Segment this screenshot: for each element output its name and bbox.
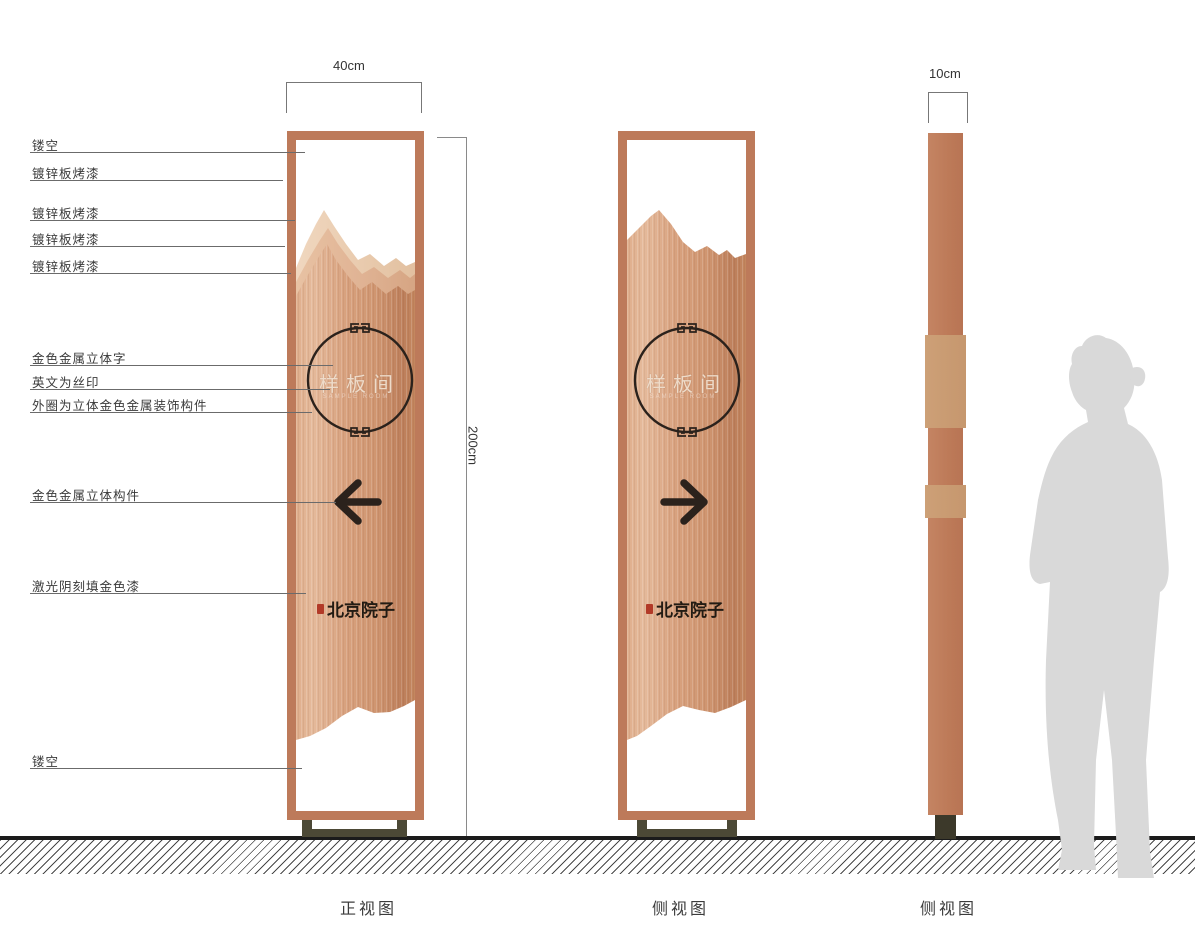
leader-line: [30, 180, 283, 181]
leader-line: [30, 412, 312, 413]
base-bar: [302, 829, 407, 837]
front-view-panel: 样板间 SAMPLE ROOM 北京院子: [296, 140, 415, 811]
leader-line: [30, 220, 295, 221]
seal-icon: [317, 604, 324, 614]
person-silhouette: [1020, 330, 1180, 880]
spec-drawing-canvas: 40cm 10cm 200cm 样板间 SAMPLE ROOM: [0, 0, 1195, 927]
profile-arrow-edge: [925, 485, 966, 518]
seal-icon: [646, 604, 653, 614]
profile-base-foot: [935, 815, 956, 839]
profile-view-column: [928, 133, 963, 815]
leader-line: [30, 246, 285, 247]
view-label-side2: 侧视图: [920, 895, 977, 919]
circle-text: 样板间: [301, 368, 411, 397]
dim-total-height: 200cm: [466, 416, 481, 476]
ground-hatch: [0, 840, 1195, 874]
dim-side-depth: 10cm: [929, 66, 961, 81]
brand-text: 北京院子: [298, 596, 414, 621]
dim-200-line: [466, 137, 467, 838]
leader-line: [30, 502, 336, 503]
dim-front-width: 40cm: [333, 58, 365, 73]
circle-text: 样板间: [628, 368, 738, 397]
copper-panel: [627, 140, 746, 811]
leader-line: [30, 365, 333, 366]
view-label-front: 正视图: [340, 895, 397, 919]
leader-line: [30, 768, 302, 769]
base-bar: [637, 829, 737, 837]
leader-line: [30, 273, 291, 274]
leader-line: [30, 389, 330, 390]
leader-line: [30, 593, 306, 594]
side-view-panel: 样板间 SAMPLE ROOM 北京院子: [627, 140, 746, 811]
arrow-left-icon: [330, 478, 382, 526]
leader-line: [30, 152, 305, 153]
profile-ring-edge: [925, 335, 966, 428]
arrow-right-icon: [660, 478, 712, 526]
dim-bracket-10cm: [928, 92, 968, 123]
dim-200-tick: [437, 137, 466, 138]
circle-english-subtext: SAMPLE ROOM: [301, 394, 411, 400]
view-label-side1: 侧视图: [652, 895, 709, 919]
brand-text: 北京院子: [627, 596, 743, 621]
ground-line: [0, 836, 1195, 840]
circle-english-subtext: SAMPLE ROOM: [628, 394, 738, 400]
dim-bracket-40cm: [286, 82, 422, 113]
